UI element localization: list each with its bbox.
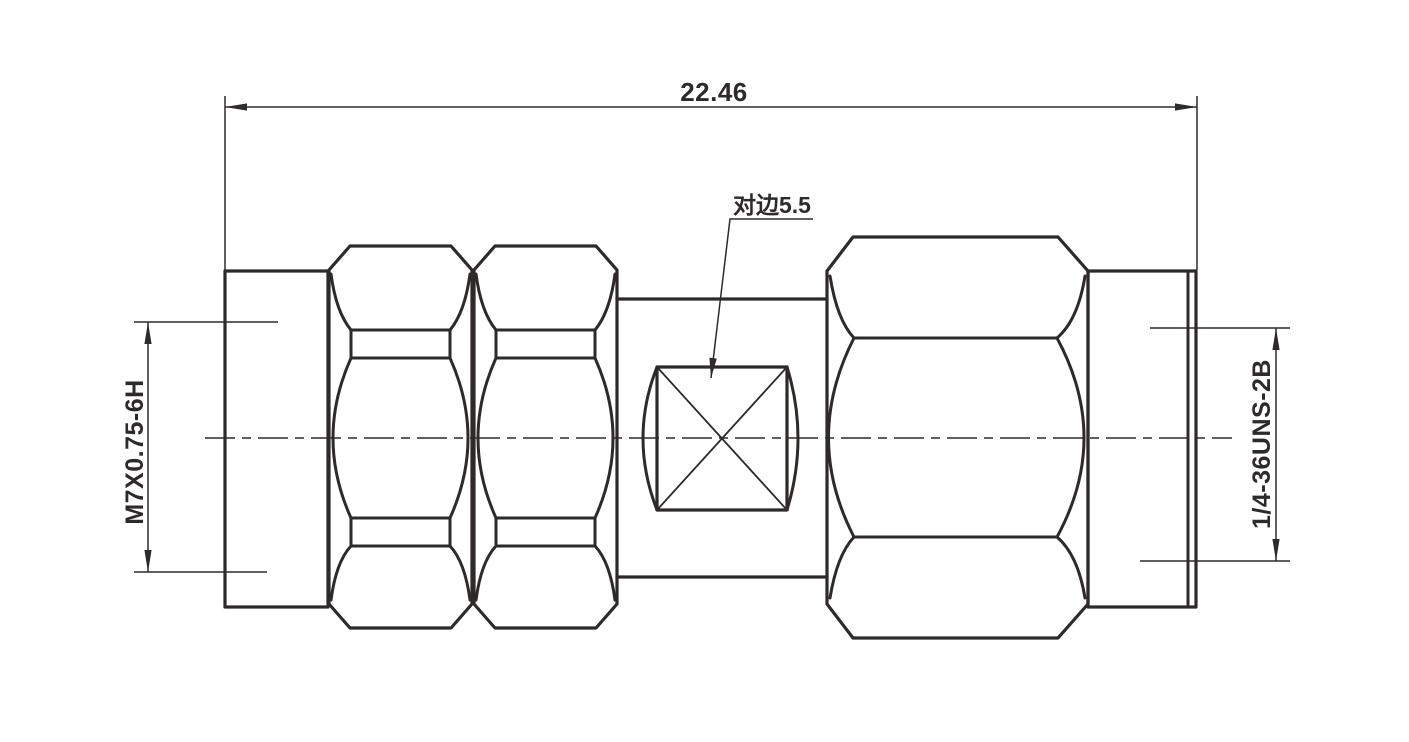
hex-nut-2-outline	[474, 246, 617, 628]
arrowhead-bottom	[1272, 539, 1279, 561]
hex-nut-1-outline	[329, 246, 472, 628]
arrowhead-left	[225, 103, 247, 110]
hex-nut-2-chamfer-arcs	[476, 274, 615, 600]
dimension-overall-length: 22.46	[225, 77, 1197, 270]
overall-length-label: 22.46	[680, 77, 748, 107]
across-flats-label: 对边5.5	[733, 192, 811, 218]
arrowhead-bottom	[144, 550, 151, 572]
arrowhead-top	[1272, 328, 1279, 350]
arrowhead-right	[1175, 103, 1197, 110]
arrowhead-top	[144, 322, 151, 344]
hex-nut-1	[329, 246, 472, 628]
hex-nut-1-chamfer-arcs	[331, 274, 470, 600]
leader-across-flats: 对边5.5	[709, 192, 813, 378]
dimension-left-thread: M7X0.75-6H	[121, 322, 278, 572]
technical-drawing: 22.46 M7X0.75-6H 1/4-36UNS-2B 对边5.5	[0, 0, 1409, 742]
left-thread-label: M7X0.75-6H	[121, 379, 149, 524]
dimension-right-thread: 1/4-36UNS-2B	[1140, 328, 1290, 561]
drawing-canvas: 22.46 M7X0.75-6H 1/4-36UNS-2B 对边5.5	[0, 0, 1409, 742]
flats-cross	[657, 367, 787, 510]
hex-nut-2	[474, 246, 617, 628]
right-thread-label: 1/4-36UNS-2B	[1248, 359, 1276, 529]
hex-nut-3-chamfer-arcs	[830, 276, 1085, 598]
right-cylinder-outline	[1088, 271, 1196, 607]
right-cylinder	[1088, 271, 1196, 607]
